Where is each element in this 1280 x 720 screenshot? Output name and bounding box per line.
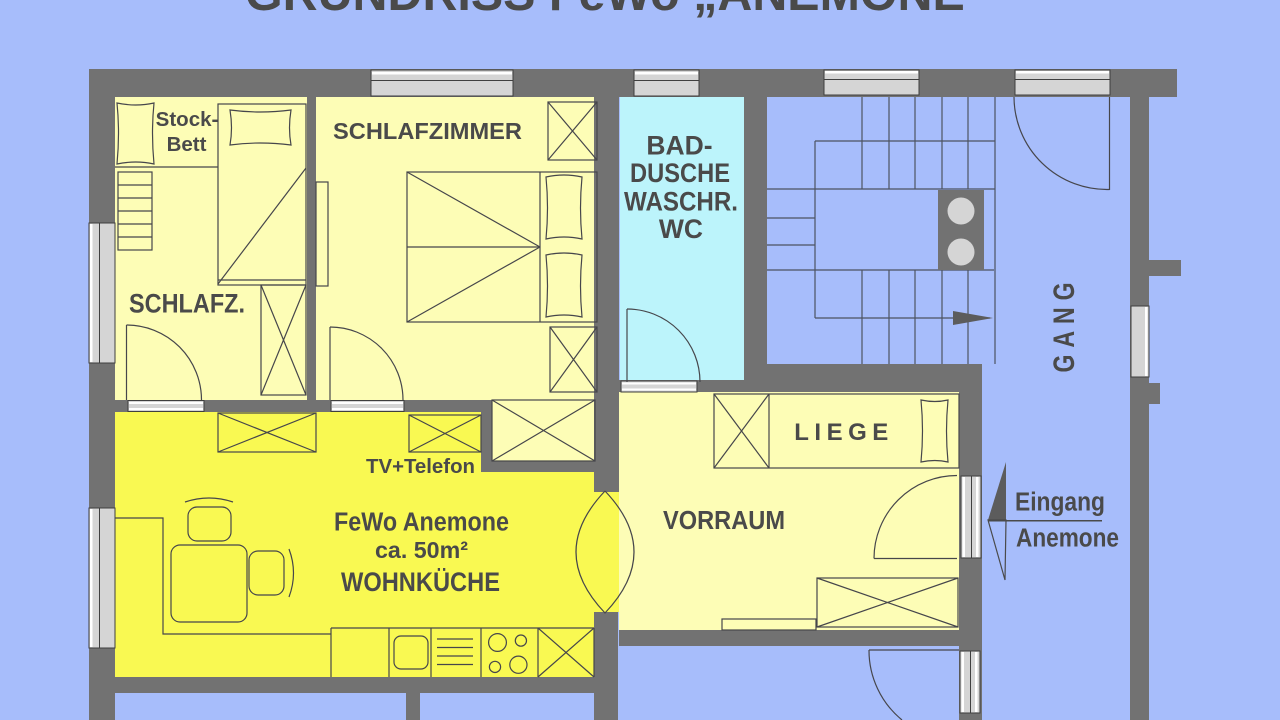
svg-text:ca. 50m²: ca. 50m² — [375, 537, 468, 563]
svg-text:BAD-: BAD- — [646, 131, 712, 161]
svg-text:TV+Telefon: TV+Telefon — [366, 456, 475, 478]
svg-text:Anemone: Anemone — [1016, 525, 1119, 553]
svg-text:Stock-: Stock- — [156, 108, 219, 131]
svg-text:GRUNDRISS FeWo „ANEMONE“: GRUNDRISS FeWo „ANEMONE“ — [245, 0, 989, 21]
svg-text:DUSCHE: DUSCHE — [630, 158, 730, 188]
svg-text:WASCHR.: WASCHR. — [624, 187, 738, 217]
svg-text:Eingang: Eingang — [1015, 489, 1105, 517]
svg-text:GANG: GANG — [1048, 276, 1081, 373]
svg-text:Bett: Bett — [167, 133, 207, 156]
svg-text:WC: WC — [659, 214, 703, 244]
svg-text:LIEGE: LIEGE — [794, 419, 894, 446]
svg-text:FeWo Anemone: FeWo Anemone — [334, 509, 509, 537]
svg-text:SCHLAFZIMMER: SCHLAFZIMMER — [333, 118, 522, 144]
svg-text:VORRAUM: VORRAUM — [663, 507, 785, 535]
svg-text:WOHNKÜCHE: WOHNKÜCHE — [341, 567, 500, 597]
svg-text:SCHLAFZ.: SCHLAFZ. — [129, 289, 245, 319]
